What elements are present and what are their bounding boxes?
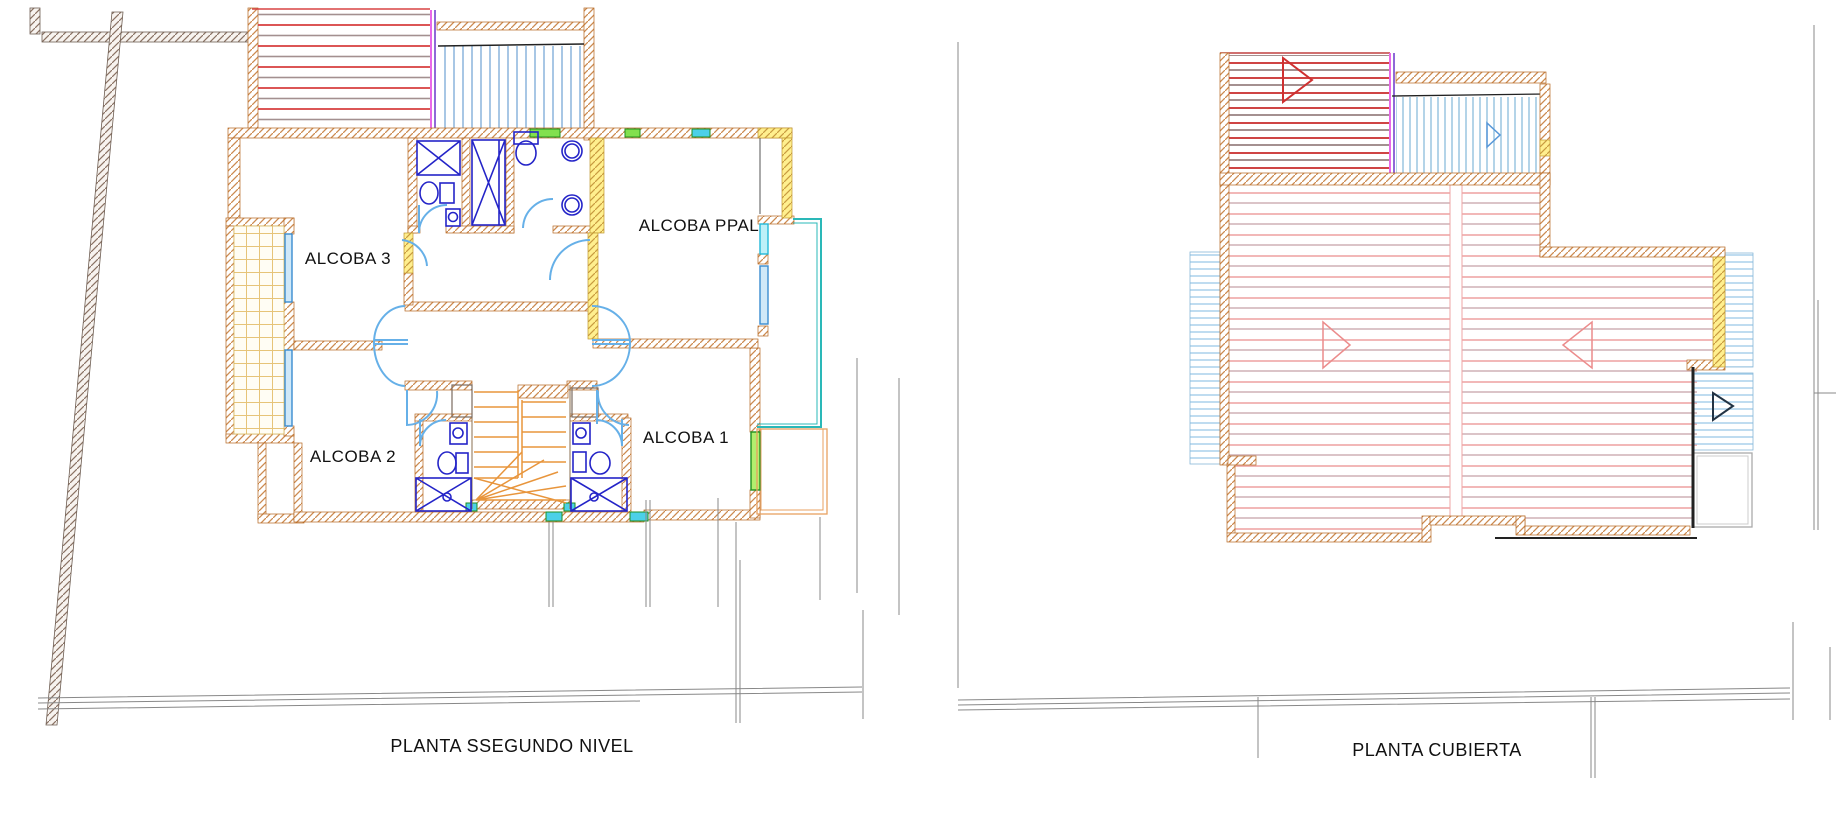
window-blue <box>760 266 768 324</box>
roof-blue-deck-section <box>1396 97 1540 173</box>
door-arc <box>419 205 447 233</box>
room-label-alcoba-2: ALCOBA 2 <box>310 447 396 466</box>
red-deck-hatch <box>258 10 430 128</box>
yellow-wall-bit <box>1540 140 1550 156</box>
roof-blue-right-block <box>1693 373 1753 450</box>
toilet-icon <box>438 452 456 474</box>
drawing-canvas: ALCOBA 3 ALCOBA PPAL ALCOBA 2 ALCOBA 1 <box>0 0 1836 815</box>
window-cyan <box>760 224 768 254</box>
door-arc <box>550 240 590 280</box>
ground-line <box>38 687 862 709</box>
window-cyan <box>546 512 562 521</box>
tiled-balcony <box>234 226 284 434</box>
door-arc <box>420 419 446 446</box>
plan-titles: PLANTA SSEGUNDO NIVEL PLANTA CUBIERTA <box>390 736 1521 760</box>
window-cyan <box>692 129 710 137</box>
room-label-alcoba-ppal: ALCOBA PPAL <box>639 216 759 235</box>
boundary-wall-top <box>42 32 252 42</box>
blue-deck-hatch <box>438 46 584 130</box>
yellow-wall-right <box>1713 257 1725 367</box>
room-label-alcoba-1: ALCOBA 1 <box>643 428 729 447</box>
toilet-icon <box>420 182 438 204</box>
boundary-post <box>30 8 40 34</box>
closet <box>572 388 598 417</box>
boundary-wall-left <box>46 12 123 725</box>
window-blue <box>285 234 292 302</box>
ridge-gap <box>1450 185 1462 516</box>
architectural-drawing: ALCOBA 3 ALCOBA PPAL ALCOBA 2 ALCOBA 1 <box>0 0 1836 815</box>
second-level-plan: ALCOBA 3 ALCOBA PPAL ALCOBA 2 ALCOBA 1 <box>30 8 899 725</box>
window-green <box>625 129 640 137</box>
room-label-alcoba-3: ALCOBA 3 <box>305 249 391 268</box>
left-plan-title: PLANTA SSEGUNDO NIVEL <box>390 736 633 756</box>
staircase <box>472 385 570 509</box>
upper-decks <box>248 8 594 140</box>
right-plan-title: PLANTA CUBIERTA <box>1352 740 1522 760</box>
roof-white-bay <box>1693 453 1752 527</box>
roof-slope-left <box>1229 185 1450 533</box>
window-green <box>530 129 560 137</box>
roof-slope-right <box>1462 185 1713 526</box>
window-blue <box>285 350 292 426</box>
roof-top-wall <box>1220 173 1550 185</box>
ground-line <box>958 688 1790 710</box>
roof-dark-red-section <box>1229 55 1389 173</box>
window-cyan <box>630 512 648 521</box>
site-lines-left <box>38 358 899 723</box>
window-green <box>751 432 760 490</box>
site-boundary-walls <box>30 8 252 725</box>
roof-plan <box>958 25 1836 778</box>
roof-blue-right-strip <box>1725 253 1753 367</box>
toilet-icon <box>590 452 610 474</box>
door-arc <box>523 199 553 228</box>
roof-blue-left-column <box>1190 252 1220 464</box>
wall-bottom <box>294 512 644 522</box>
